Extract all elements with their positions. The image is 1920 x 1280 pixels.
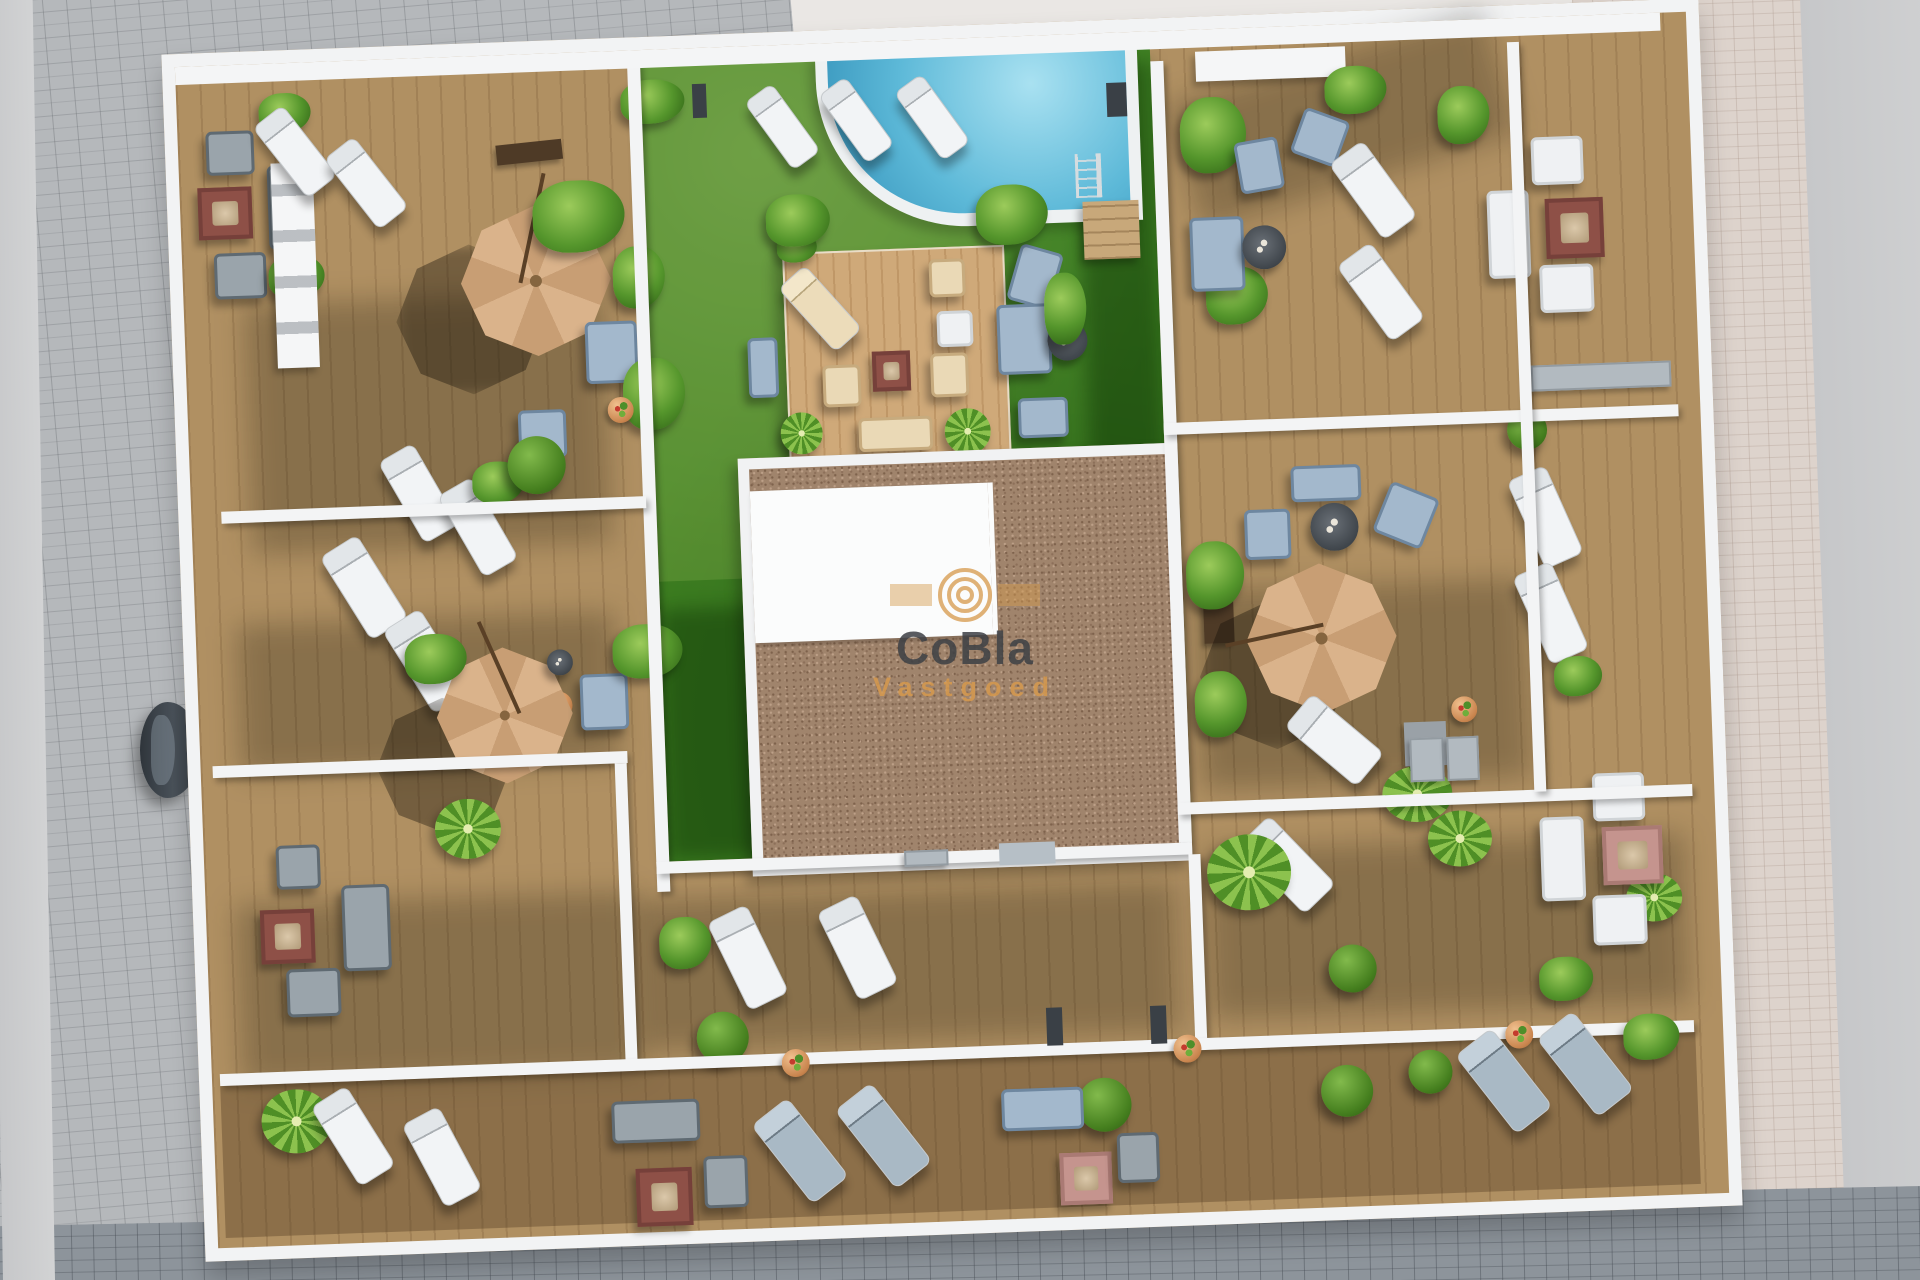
armchair: [1592, 894, 1648, 946]
concentric-arcs-icon: [938, 568, 992, 622]
armchair: [286, 968, 342, 1018]
sofa: [341, 884, 392, 972]
armchair: [930, 352, 970, 397]
fire-pit-table: [1059, 1152, 1113, 1206]
sofa: [858, 416, 933, 453]
ac-unit: [1446, 736, 1480, 781]
door: [1150, 1005, 1167, 1044]
lounge-chair: [1018, 397, 1069, 439]
watermark-logo-icon: [890, 568, 1040, 622]
sofa: [1001, 1087, 1084, 1132]
sun-lounger: [324, 136, 409, 230]
watermark-bar-icon: [998, 584, 1040, 606]
door: [1046, 1007, 1063, 1046]
lounge-chair: [1372, 481, 1440, 550]
armchair: [205, 130, 255, 176]
lounge-chair: [1244, 509, 1292, 561]
armchair: [822, 364, 862, 407]
parasol-base-bench: [495, 139, 563, 166]
partition-wall: [1164, 404, 1679, 435]
round-table: [1241, 225, 1287, 271]
ac-unit: [1409, 737, 1445, 782]
plant: [1553, 655, 1602, 697]
armchair: [936, 310, 973, 347]
fire-pit-table: [197, 186, 253, 240]
fire-pit-table: [636, 1167, 694, 1227]
sofa: [1290, 464, 1361, 503]
lounge-chair: [1233, 136, 1285, 195]
armchair: [275, 844, 321, 890]
sun-lounger: [1506, 465, 1584, 570]
fire-pit-table: [872, 350, 911, 391]
fire-pit-table: [260, 909, 316, 965]
pool-wood-steps: [1082, 200, 1140, 260]
pool-ladder: [1075, 153, 1103, 198]
armchair: [703, 1155, 749, 1209]
ac-unit: [904, 849, 949, 867]
palm-plant: [434, 798, 502, 860]
ac-unit: [1531, 360, 1672, 391]
plant: [531, 179, 626, 254]
armchair: [1530, 136, 1584, 186]
round-table: [1310, 502, 1360, 552]
watermark-bar-icon: [890, 584, 932, 606]
sun-lounger: [1336, 242, 1425, 343]
fire-pit-table: [1602, 825, 1664, 885]
outdoor-kitchen-counter: [1195, 46, 1346, 81]
fire-pit-table: [1545, 197, 1605, 259]
armchair: [214, 252, 268, 300]
armchair: [1539, 263, 1595, 313]
sofa: [611, 1099, 700, 1144]
armchair: [1117, 1132, 1161, 1184]
sofa: [1539, 816, 1586, 902]
armchair: [928, 258, 965, 297]
outdoor-shower-post: [692, 84, 707, 118]
watermark-subtitle: Vastgoed: [873, 672, 1057, 703]
sofa: [1189, 216, 1246, 292]
rooftop-aerial-render: CoBla Vastgoed: [0, 0, 1920, 1280]
lounge-chair: [747, 337, 779, 398]
door: [999, 841, 1056, 865]
lounge-chair: [579, 673, 629, 731]
watermark-title: CoBla: [896, 624, 1034, 672]
door: [1106, 82, 1127, 117]
watermark: CoBla Vastgoed: [835, 568, 1095, 732]
